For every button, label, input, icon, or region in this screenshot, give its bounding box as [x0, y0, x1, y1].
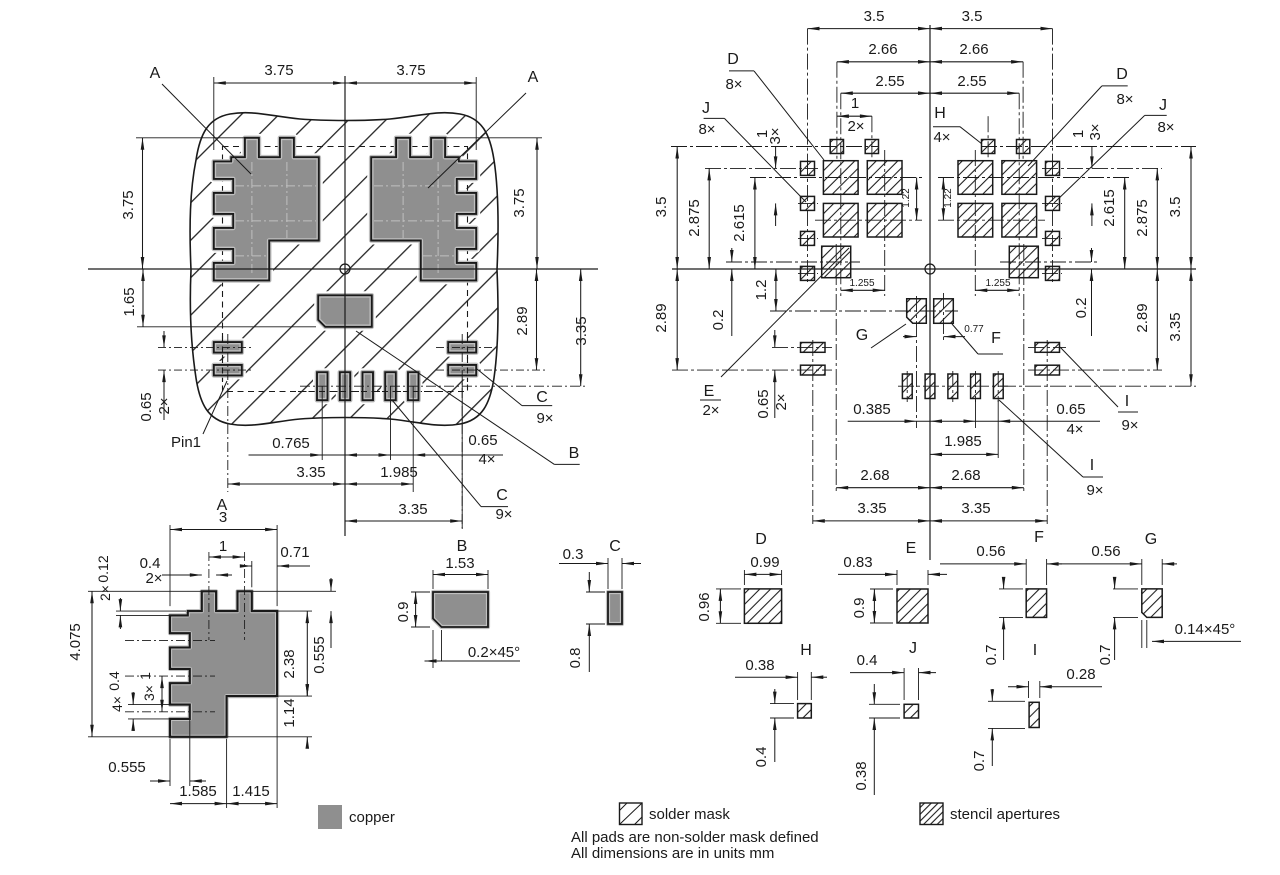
svg-text:2.55: 2.55: [875, 73, 904, 90]
svg-text:0.4: 0.4: [857, 652, 878, 669]
svg-text:1.65: 1.65: [121, 287, 138, 316]
svg-text:solder mask: solder mask: [649, 806, 730, 823]
svg-text:2.615: 2.615: [731, 204, 748, 242]
svg-text:2.68: 2.68: [860, 467, 889, 484]
svg-text:A: A: [528, 69, 539, 86]
svg-text:D: D: [727, 51, 739, 68]
svg-text:0.12: 0.12: [95, 555, 111, 582]
svg-text:0.83: 0.83: [843, 554, 872, 571]
svg-text:H: H: [934, 105, 946, 122]
svg-text:4×: 4×: [478, 451, 495, 468]
svg-text:1: 1: [851, 95, 859, 112]
svg-text:0.56: 0.56: [1091, 543, 1120, 560]
svg-text:0.3: 0.3: [563, 546, 584, 563]
svg-text:0.7: 0.7: [971, 751, 988, 772]
svg-text:0.555: 0.555: [108, 759, 146, 776]
svg-text:C: C: [609, 538, 621, 555]
svg-text:1.53: 1.53: [445, 555, 474, 572]
svg-text:B: B: [457, 538, 468, 555]
svg-text:All pads are non-solder mask d: All pads are non-solder mask defined: [571, 829, 819, 846]
svg-text:3: 3: [219, 509, 227, 526]
svg-text:J: J: [909, 640, 917, 657]
svg-text:2×: 2×: [145, 570, 162, 587]
svg-text:2.875: 2.875: [1134, 199, 1151, 237]
svg-text:2.89: 2.89: [514, 306, 531, 335]
svg-text:1: 1: [1070, 130, 1087, 138]
svg-text:2×: 2×: [847, 118, 864, 135]
svg-text:1.985: 1.985: [944, 433, 982, 450]
svg-text:0.56: 0.56: [976, 543, 1005, 560]
svg-text:B: B: [569, 445, 580, 462]
svg-text:1.255: 1.255: [849, 278, 874, 289]
svg-text:C: C: [496, 487, 508, 504]
svg-text:9×: 9×: [1086, 482, 1103, 499]
svg-text:0.96: 0.96: [696, 592, 713, 621]
svg-text:A: A: [150, 65, 161, 82]
svg-text:H: H: [800, 642, 812, 659]
svg-text:0.65: 0.65: [1056, 401, 1085, 418]
svg-text:3.5: 3.5: [653, 197, 670, 218]
svg-text:8×: 8×: [1116, 91, 1133, 108]
svg-text:D: D: [1116, 66, 1128, 83]
svg-text:0.9: 0.9: [851, 598, 868, 619]
svg-text:1.22: 1.22: [943, 188, 954, 208]
svg-text:I: I: [1125, 393, 1129, 410]
svg-text:3.35: 3.35: [573, 316, 590, 345]
svg-text:4×: 4×: [933, 129, 950, 146]
svg-text:8×: 8×: [698, 121, 715, 138]
svg-text:4×: 4×: [1066, 421, 1083, 438]
svg-text:3.75: 3.75: [264, 62, 293, 79]
svg-text:2.55: 2.55: [957, 73, 986, 90]
svg-text:3.5: 3.5: [962, 8, 983, 25]
svg-text:3.35: 3.35: [1167, 312, 1184, 341]
svg-text:2×: 2×: [156, 397, 173, 414]
svg-text:4×: 4×: [109, 696, 125, 712]
svg-text:2.89: 2.89: [1134, 303, 1151, 332]
svg-text:1.14: 1.14: [281, 698, 298, 727]
svg-text:D: D: [755, 531, 767, 548]
svg-text:0.99: 0.99: [750, 554, 779, 571]
svg-text:3.5: 3.5: [864, 8, 885, 25]
svg-text:3.35: 3.35: [296, 464, 325, 481]
svg-text:3.75: 3.75: [120, 190, 137, 219]
svg-text:0.9: 0.9: [395, 602, 412, 623]
svg-text:3.35: 3.35: [961, 500, 990, 517]
svg-text:0.28: 0.28: [1066, 666, 1095, 683]
svg-text:0.2: 0.2: [710, 310, 727, 331]
svg-text:2.89: 2.89: [653, 303, 670, 332]
svg-text:1: 1: [137, 672, 153, 680]
svg-text:G: G: [1145, 531, 1157, 548]
svg-text:copper: copper: [349, 809, 395, 826]
svg-text:9×: 9×: [495, 506, 512, 523]
svg-text:0.14×45°: 0.14×45°: [1175, 621, 1236, 638]
svg-text:3×: 3×: [1087, 123, 1104, 140]
svg-text:0.71: 0.71: [280, 544, 309, 561]
svg-text:1.585: 1.585: [179, 783, 217, 800]
svg-text:2.66: 2.66: [959, 41, 988, 58]
svg-text:stencil apertures: stencil apertures: [950, 806, 1060, 823]
svg-text:1.255: 1.255: [985, 278, 1010, 289]
svg-text:All dimensions are in units mm: All dimensions are in units mm: [571, 845, 774, 862]
svg-text:E: E: [906, 540, 917, 557]
svg-text:0.765: 0.765: [272, 435, 310, 452]
svg-text:F: F: [991, 330, 1001, 347]
svg-text:9×: 9×: [536, 410, 553, 427]
svg-text:0.65: 0.65: [138, 392, 155, 421]
svg-text:0.7: 0.7: [1097, 645, 1114, 666]
svg-text:F: F: [1034, 529, 1044, 546]
svg-text:3.35: 3.35: [398, 501, 427, 518]
svg-text:3.75: 3.75: [511, 188, 528, 217]
svg-text:0.38: 0.38: [745, 657, 774, 674]
svg-text:I: I: [1090, 457, 1094, 474]
svg-text:0.4: 0.4: [753, 747, 770, 768]
svg-text:0.385: 0.385: [853, 401, 891, 418]
svg-text:J: J: [1159, 97, 1167, 114]
svg-text:8×: 8×: [725, 76, 742, 93]
svg-text:8×: 8×: [1157, 119, 1174, 136]
svg-text:2.615: 2.615: [1101, 189, 1118, 227]
svg-text:3×: 3×: [767, 127, 784, 144]
svg-text:2.68: 2.68: [951, 467, 980, 484]
svg-text:J: J: [702, 100, 710, 117]
svg-text:0.555: 0.555: [311, 636, 328, 674]
svg-text:1.2: 1.2: [753, 280, 770, 301]
svg-text:2.66: 2.66: [868, 41, 897, 58]
svg-text:1.415: 1.415: [232, 783, 270, 800]
svg-text:2.875: 2.875: [686, 199, 703, 237]
svg-text:0.65: 0.65: [755, 389, 772, 418]
svg-text:C: C: [536, 389, 548, 406]
svg-text:0.8: 0.8: [567, 648, 584, 669]
svg-text:G: G: [856, 327, 868, 344]
svg-text:3.75: 3.75: [396, 62, 425, 79]
svg-text:3.35: 3.35: [857, 500, 886, 517]
svg-text:2.38: 2.38: [281, 649, 298, 678]
svg-text:0.38: 0.38: [853, 761, 870, 790]
svg-text:0.4: 0.4: [106, 671, 122, 691]
svg-text:Pin1: Pin1: [171, 434, 201, 451]
svg-text:4.075: 4.075: [67, 623, 84, 661]
svg-text:I: I: [1033, 642, 1037, 659]
svg-text:0.2: 0.2: [1073, 298, 1090, 319]
svg-text:2×: 2×: [773, 393, 790, 410]
svg-text:0.77: 0.77: [964, 324, 984, 335]
svg-text:0.65: 0.65: [468, 432, 497, 449]
svg-text:3×: 3×: [141, 685, 157, 701]
svg-text:2×: 2×: [97, 585, 113, 601]
svg-text:E: E: [704, 383, 715, 400]
svg-text:3.5: 3.5: [1167, 197, 1184, 218]
svg-text:1.985: 1.985: [380, 464, 418, 481]
svg-text:0.7: 0.7: [983, 645, 1000, 666]
svg-text:1: 1: [219, 538, 227, 555]
svg-text:0.2×45°: 0.2×45°: [468, 644, 520, 661]
svg-text:1.22: 1.22: [901, 188, 912, 208]
svg-text:9×: 9×: [1121, 417, 1138, 434]
svg-text:2×: 2×: [702, 402, 719, 419]
